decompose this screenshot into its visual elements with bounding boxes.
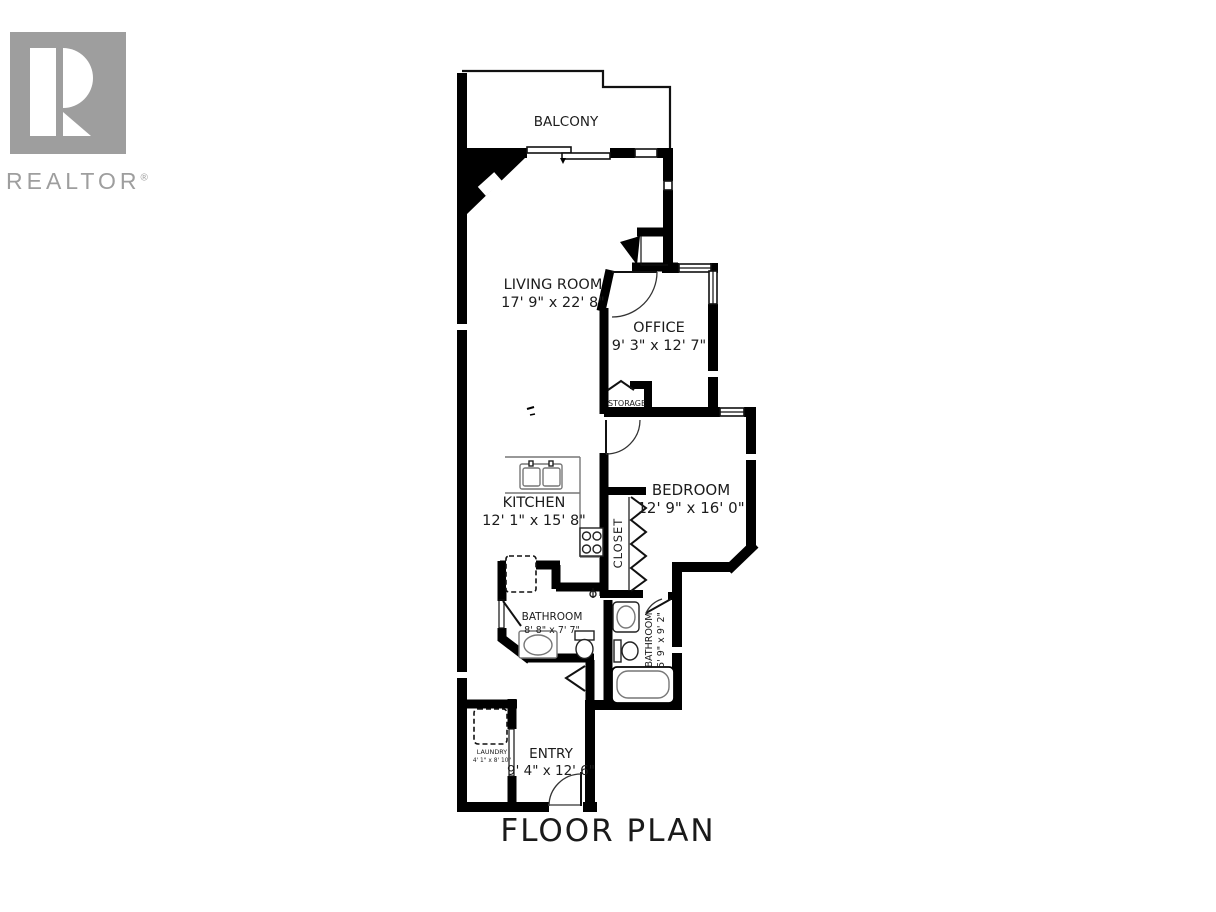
closet-label: CLOSET [611,518,625,569]
bathroom-ensuite-label: BATHROOM [644,613,655,668]
entry-label: ENTRY [529,746,573,762]
laundry-label: LAUNDRY [477,748,507,756]
laundry-dims: 4' 1" x 8' 10" [473,758,512,764]
balcony-sliding-door-panel [527,147,571,153]
floor-marks [527,407,535,415]
bedroom-label: BEDROOM [652,481,730,499]
office-door [612,272,657,317]
kitchen-label: KITCHEN [503,495,566,511]
fireplace-icon [467,157,526,214]
storage-label: STORAGE [608,399,646,408]
laundry-fixtures [474,709,507,744]
wall-tick [560,158,566,164]
balcony-window [635,149,657,157]
entry-dims: 9' 4" x 12' 6" [507,763,595,779]
fridge-icon [506,556,536,592]
ensuite-sink-icon [613,602,639,632]
living-room-label: LIVING ROOM [504,277,603,293]
bathtub-icon [612,667,674,703]
bedroom-dims: 12' 9" x 16' 0" [637,499,744,517]
living-room-side-window [664,181,672,190]
stove-icon [580,528,603,556]
ensuite-toilet-icon [614,640,638,662]
bathroom-ensuite-dims: 5' 9" x 9' 2" [656,612,667,668]
nook-door [620,236,668,265]
living-room-dims: 17' 9" x 22' 8" [501,295,605,311]
washer-icon [474,709,507,744]
balcony-label: BALCONY [534,114,599,130]
kitchen-sink-icon [520,461,562,489]
balcony-outline [462,71,670,150]
bathroom-main-dims: 8' 8" x 7' 7" [524,625,580,636]
kitchen-dims: 12' 1" x 15' 8" [482,513,586,529]
balcony-sliding-door-panel [562,153,610,159]
floor-plan-drawing: BALCONY LIVING ROOM 17' 9" x 22' 8" OFFI… [0,0,1216,912]
hall-door [566,666,585,691]
bathroom-main-label: BATHROOM [522,611,583,623]
bedroom-door [606,420,640,454]
bathroom-ensuite-door [646,599,671,613]
office-label: OFFICE [633,320,685,336]
office-dims: 9' 3" x 12' 7" [612,338,706,354]
page: REALTOR® [0,0,1216,912]
plan-title: FLOOR PLAN [500,813,715,849]
bathroom-main-door [499,600,521,628]
